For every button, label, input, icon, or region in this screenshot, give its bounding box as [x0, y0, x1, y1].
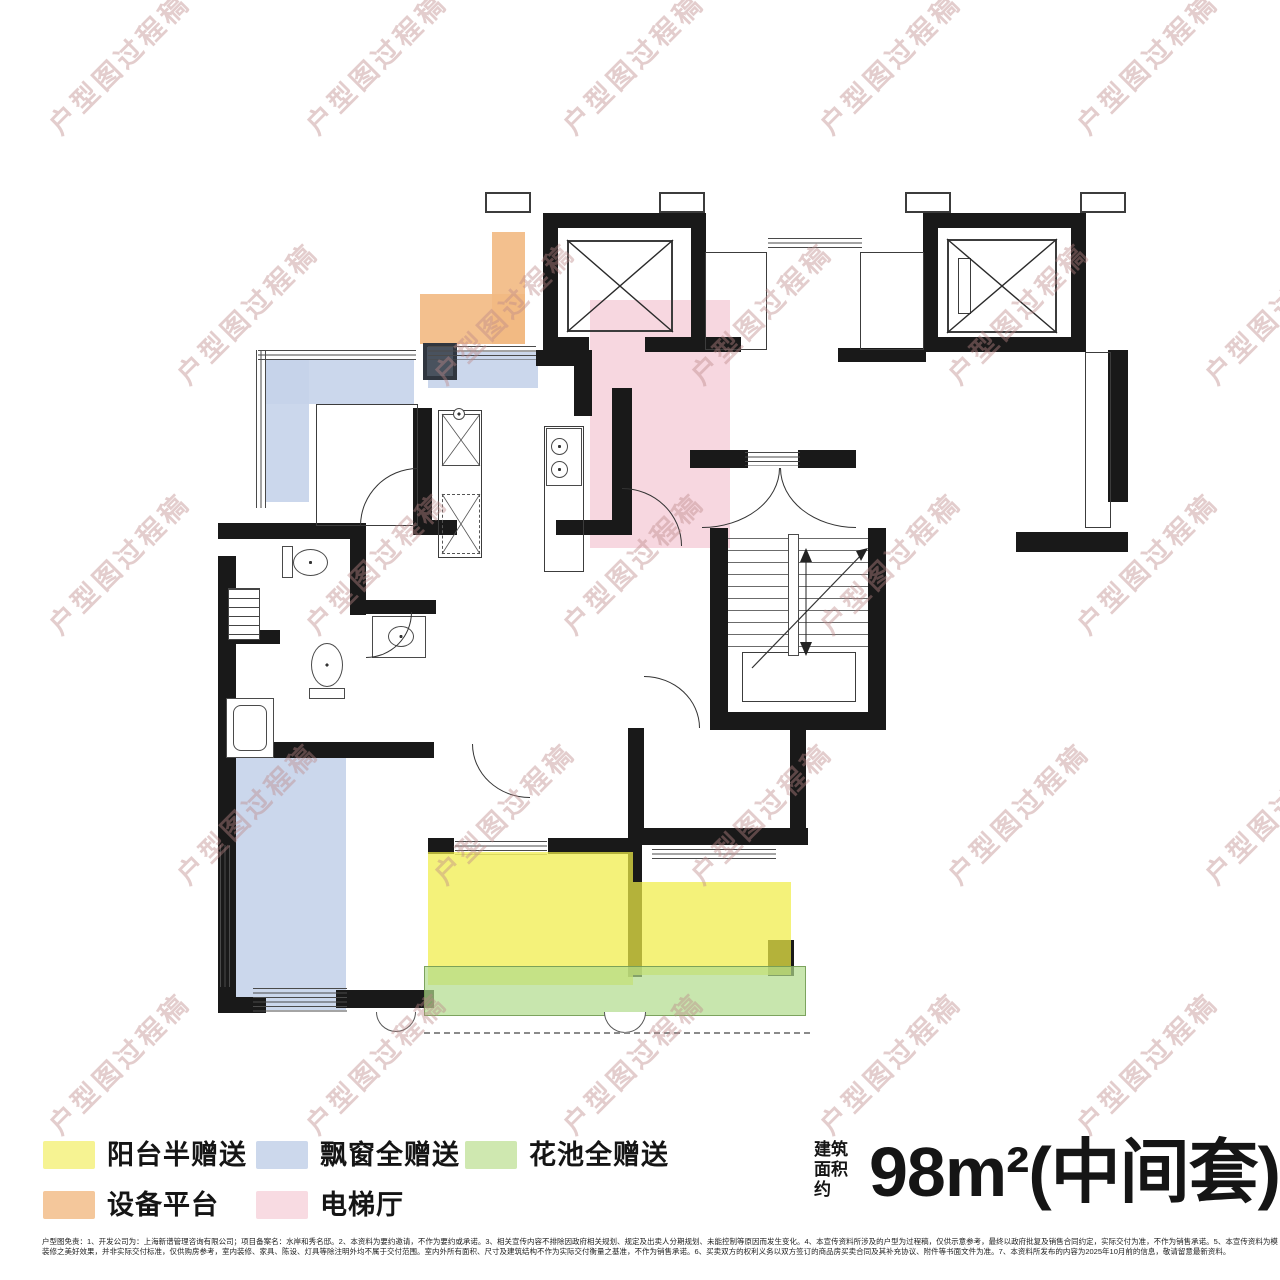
area-value: 98m²(中间套) [869, 1136, 1280, 1210]
legend-item-elevator-hall: 电梯厅 [256, 1191, 404, 1219]
legend-label: 电梯厅 [320, 1191, 404, 1219]
area-info: 建筑 面积约 98m²(中间套) [814, 1136, 1280, 1210]
disclaimer: 户型图免责：1、开发公司为：上海新谱管理咨询有限公司；项目备案名：水岸和秀名邸。… [42, 1237, 1278, 1256]
legend-item-equipment-platform: 设备平台 [43, 1191, 219, 1219]
floor-plan-page: { "watermark": { "text": "户型图过程稿", "colo… [0, 0, 1280, 1280]
legend-swatch-green [465, 1141, 517, 1169]
area-prefix-line1: 建筑 [814, 1140, 863, 1160]
area-prefix-line2: 面积约 [814, 1160, 863, 1200]
legend-item-bay-window: 飘窗全赠送 [256, 1141, 460, 1169]
legend-swatch-orange [43, 1191, 95, 1219]
legend-swatch-blue [256, 1141, 308, 1169]
legend-item-balcony: 阳台半赠送 [43, 1141, 247, 1169]
legend-swatch-pink [256, 1191, 308, 1219]
legend-label: 设备平台 [107, 1191, 219, 1219]
legend: 阳台半赠送 飘窗全赠送 花池全赠送 设备平台 电梯厅 [0, 0, 1280, 1280]
legend-swatch-yellow [43, 1141, 95, 1169]
legend-label: 阳台半赠送 [107, 1141, 247, 1169]
area-prefix: 建筑 面积约 [814, 1140, 863, 1200]
legend-label: 飘窗全赠送 [320, 1141, 460, 1169]
disclaimer-line2: 装修之美好效果，并非实际交付标准，仅供购房参考，室内装修、家具、陈设、灯具等除注… [42, 1247, 1278, 1257]
legend-label: 花池全赠送 [529, 1141, 669, 1169]
legend-item-flower-bed: 花池全赠送 [465, 1141, 669, 1169]
disclaimer-line1: 户型图免责：1、开发公司为：上海新谱管理咨询有限公司；项目备案名：水岸和秀名邸。… [42, 1237, 1278, 1247]
